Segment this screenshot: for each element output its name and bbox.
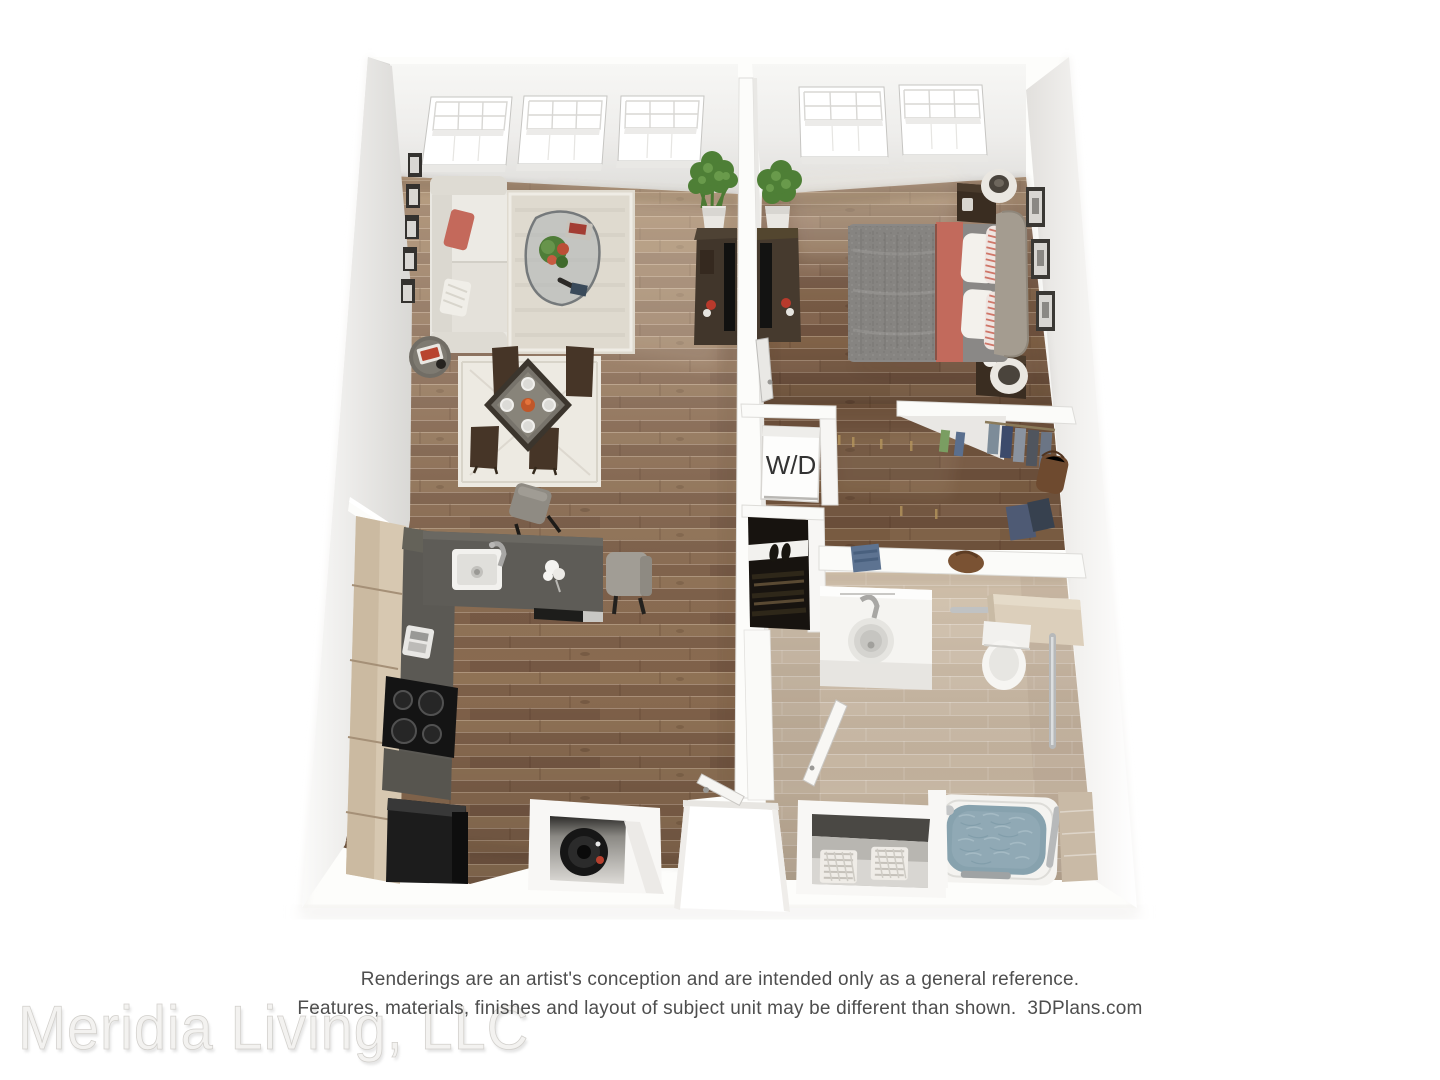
- svg-text:W/D: W/D: [766, 450, 817, 480]
